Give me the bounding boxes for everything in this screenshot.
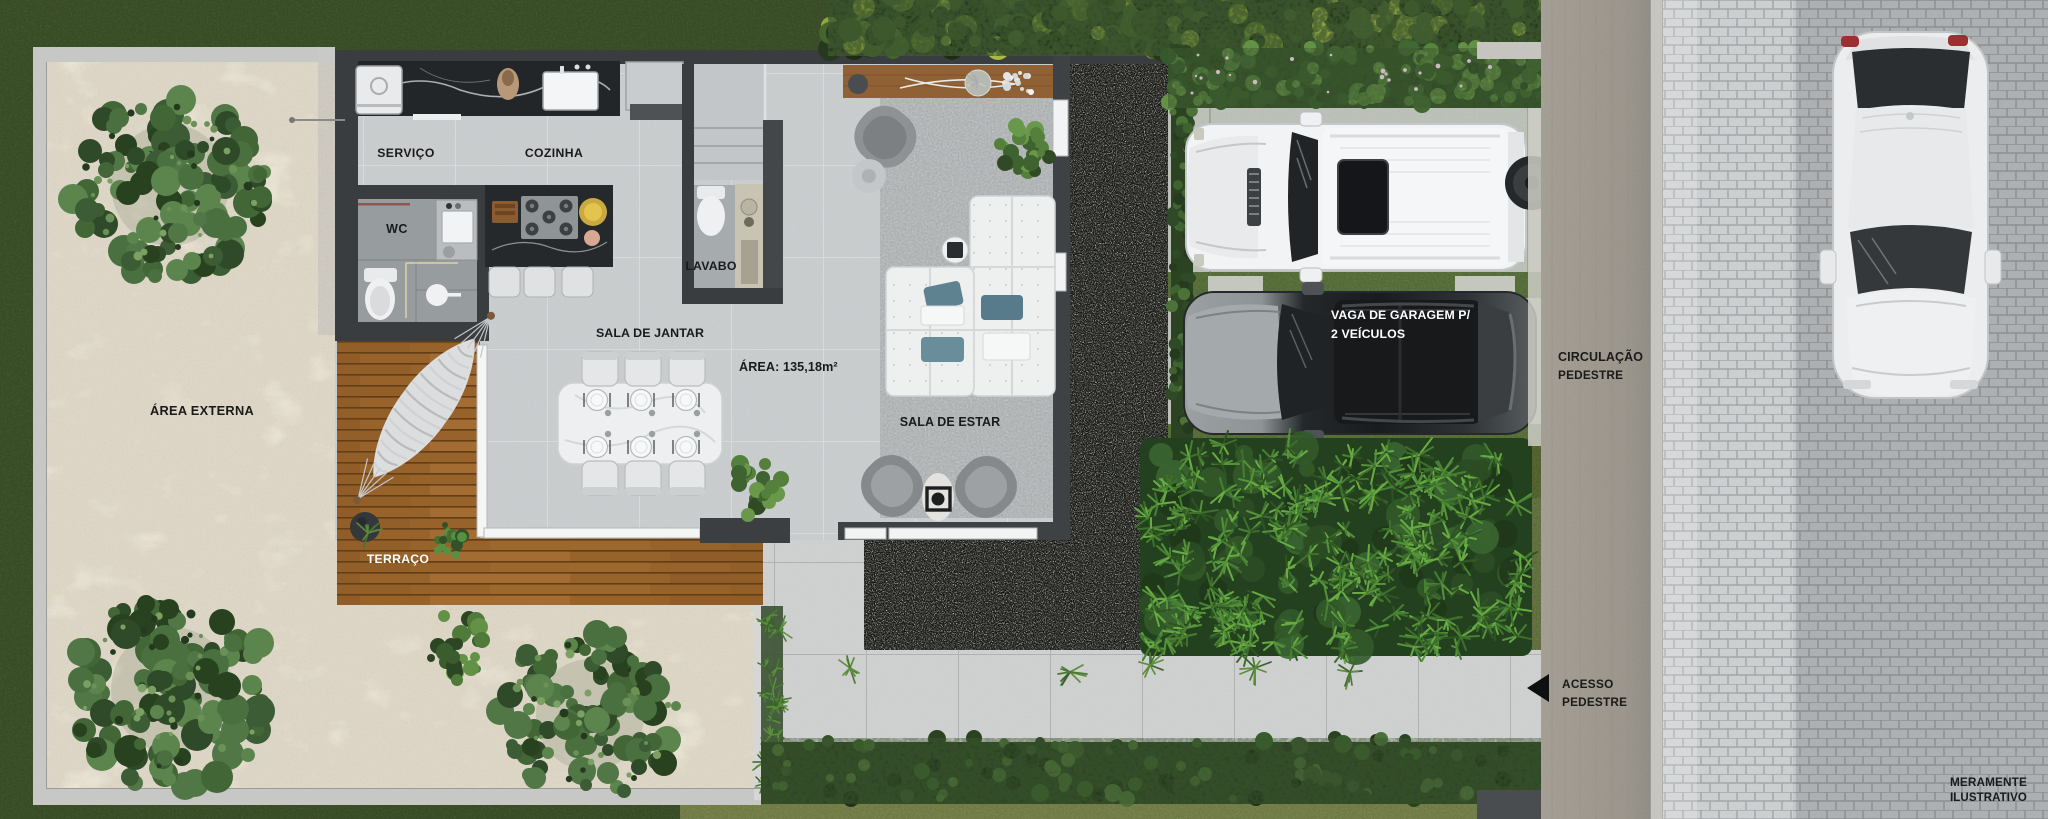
svg-text:SERVIÇO: SERVIÇO bbox=[377, 146, 434, 160]
svg-text:ACESSO: ACESSO bbox=[1562, 677, 1614, 691]
svg-text:PEDESTRE: PEDESTRE bbox=[1558, 368, 1623, 382]
svg-text:LAVABO: LAVABO bbox=[685, 259, 737, 273]
svg-text:ÁREA: 135,18m²: ÁREA: 135,18m² bbox=[739, 359, 838, 374]
svg-text:TERRAÇO: TERRAÇO bbox=[367, 552, 429, 566]
svg-text:2 VEÍCULOS: 2 VEÍCULOS bbox=[1331, 326, 1405, 341]
svg-text:CIRCULAÇÃO: CIRCULAÇÃO bbox=[1558, 349, 1643, 364]
svg-text:MERAMENTE: MERAMENTE bbox=[1950, 775, 2027, 789]
svg-text:ÁREA EXTERNA: ÁREA EXTERNA bbox=[150, 403, 254, 418]
svg-text:WC: WC bbox=[386, 222, 408, 236]
svg-text:VAGA DE GARAGEM P/: VAGA DE GARAGEM P/ bbox=[1331, 308, 1471, 322]
svg-text:SALA DE JANTAR: SALA DE JANTAR bbox=[596, 326, 704, 340]
svg-text:SALA DE ESTAR: SALA DE ESTAR bbox=[900, 415, 1001, 429]
svg-text:ILUSTRATIVO: ILUSTRATIVO bbox=[1950, 792, 2027, 804]
svg-text:COZINHA: COZINHA bbox=[525, 146, 583, 160]
svg-text:PEDESTRE: PEDESTRE bbox=[1562, 695, 1627, 709]
